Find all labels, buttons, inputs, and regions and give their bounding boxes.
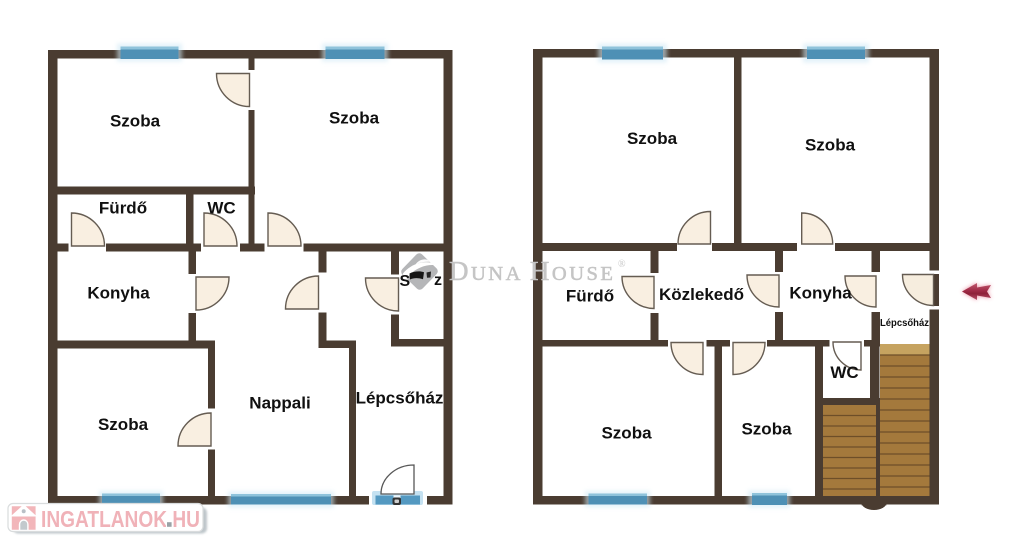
svg-text:Szoba: Szoba xyxy=(329,109,380,128)
svg-text:WC: WC xyxy=(207,199,235,218)
svg-text:Szoba: Szoba xyxy=(805,136,856,155)
svg-text:Szoba: Szoba xyxy=(110,112,161,131)
svg-text:Fürdő: Fürdő xyxy=(99,199,147,218)
svg-text:Szoba: Szoba xyxy=(98,415,149,434)
svg-text:Konyha: Konyha xyxy=(789,284,852,303)
svg-text:z: z xyxy=(434,272,442,289)
svg-text:Közlekedő: Közlekedő xyxy=(659,285,744,304)
svg-text:INGATLANOK.HU: INGATLANOK.HU xyxy=(41,506,200,532)
svg-text:Nappali: Nappali xyxy=(249,394,310,413)
svg-text:Szoba: Szoba xyxy=(601,424,652,443)
svg-text:Szoba: Szoba xyxy=(627,129,678,148)
svg-text:WC: WC xyxy=(830,363,858,382)
svg-text:Fürdő: Fürdő xyxy=(566,287,614,306)
svg-text:Szoba: Szoba xyxy=(741,420,792,439)
svg-text:Konyha: Konyha xyxy=(87,284,150,303)
svg-text:®: ® xyxy=(618,259,626,270)
svg-text:Lépcsőház: Lépcsőház xyxy=(880,318,929,329)
svg-text:Lépcsőház: Lépcsőház xyxy=(356,389,444,408)
svg-text:S: S xyxy=(400,273,411,290)
